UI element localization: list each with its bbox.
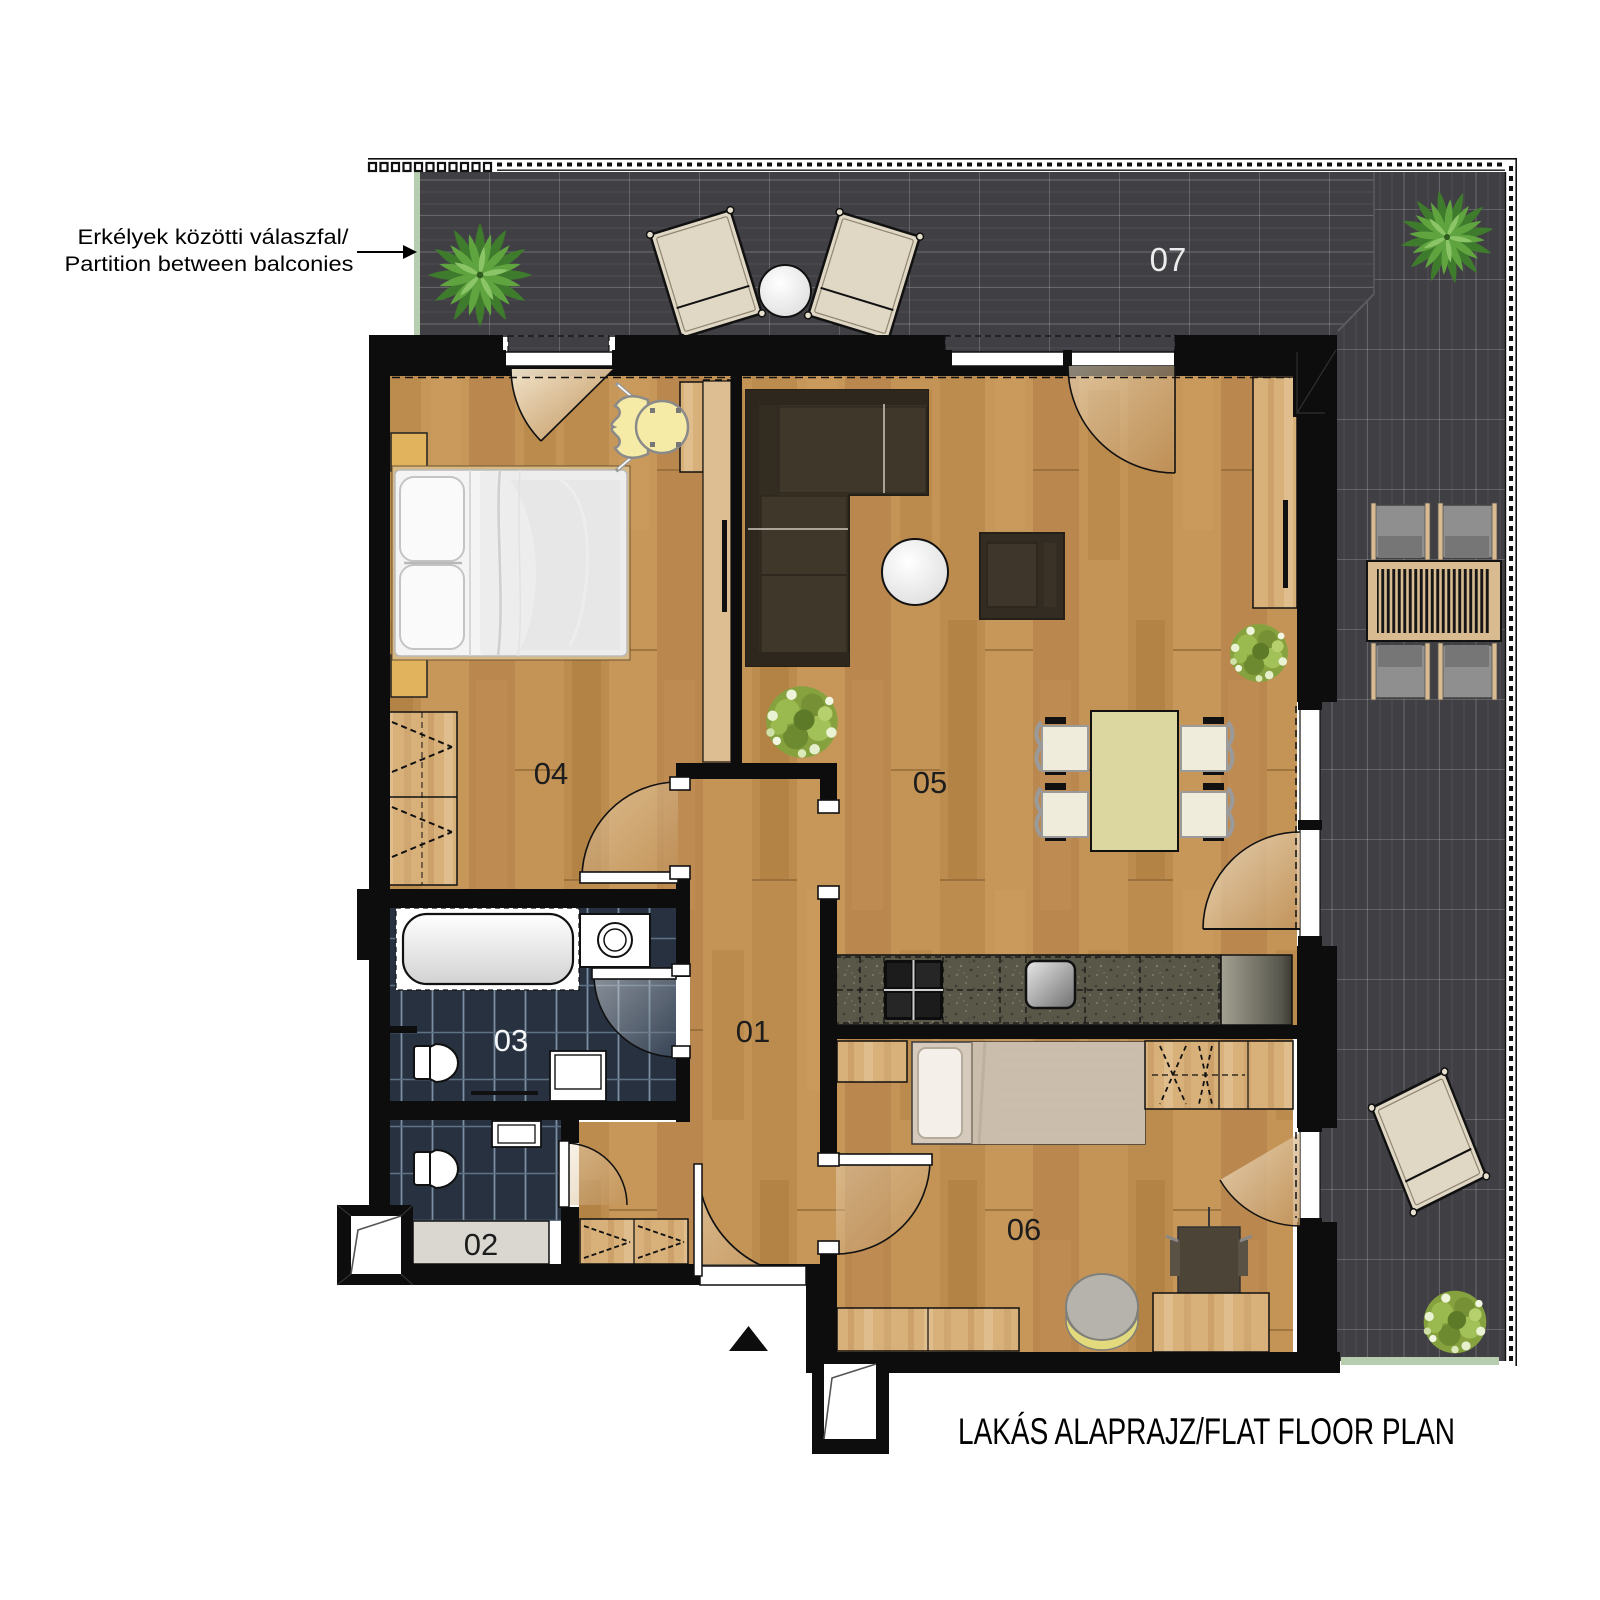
svg-text:01: 01 <box>736 1014 770 1049</box>
svg-text:03: 03 <box>494 1023 528 1058</box>
svg-text:Partition between balconies: Partition between balconies <box>65 253 354 276</box>
svg-text:02: 02 <box>464 1227 498 1262</box>
svg-text:05: 05 <box>913 765 947 800</box>
svg-text:04: 04 <box>534 756 568 791</box>
svg-text:07: 07 <box>1150 241 1187 278</box>
svg-text:LAKÁS ALAPRAJZ/FLAT FLOOR PLAN: LAKÁS ALAPRAJZ/FLAT FLOOR PLAN <box>958 1411 1455 1452</box>
svg-text:Erkélyek közötti válaszfal/: Erkélyek közötti válaszfal/ <box>78 226 349 249</box>
svg-text:06: 06 <box>1007 1212 1041 1247</box>
